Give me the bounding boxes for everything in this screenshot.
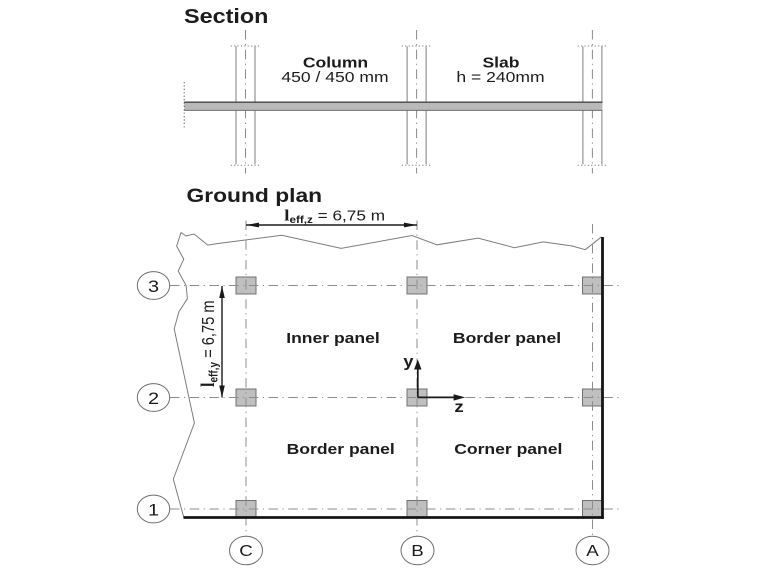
svg-text:A: A	[586, 541, 599, 559]
svg-text:3: 3	[148, 277, 159, 296]
svg-text:1: 1	[148, 500, 159, 519]
svg-text:Section: Section	[184, 5, 268, 28]
svg-text:2: 2	[148, 389, 159, 408]
svg-text:z: z	[454, 397, 464, 415]
svg-text:Border panel: Border panel	[287, 441, 395, 458]
svg-text:y: y	[403, 353, 414, 370]
svg-text:Border panel: Border panel	[453, 330, 561, 347]
svg-text:B: B	[411, 541, 423, 559]
svg-text:C: C	[239, 541, 253, 559]
svg-text:450 / 450 mm: 450 / 450 mm	[281, 69, 388, 86]
svg-text:h = 240mm: h = 240mm	[456, 69, 544, 86]
svg-text:Inner panel: Inner panel	[286, 330, 380, 347]
svg-text:Ground plan: Ground plan	[187, 185, 323, 206]
svg-text:Corner panel: Corner panel	[454, 441, 562, 458]
